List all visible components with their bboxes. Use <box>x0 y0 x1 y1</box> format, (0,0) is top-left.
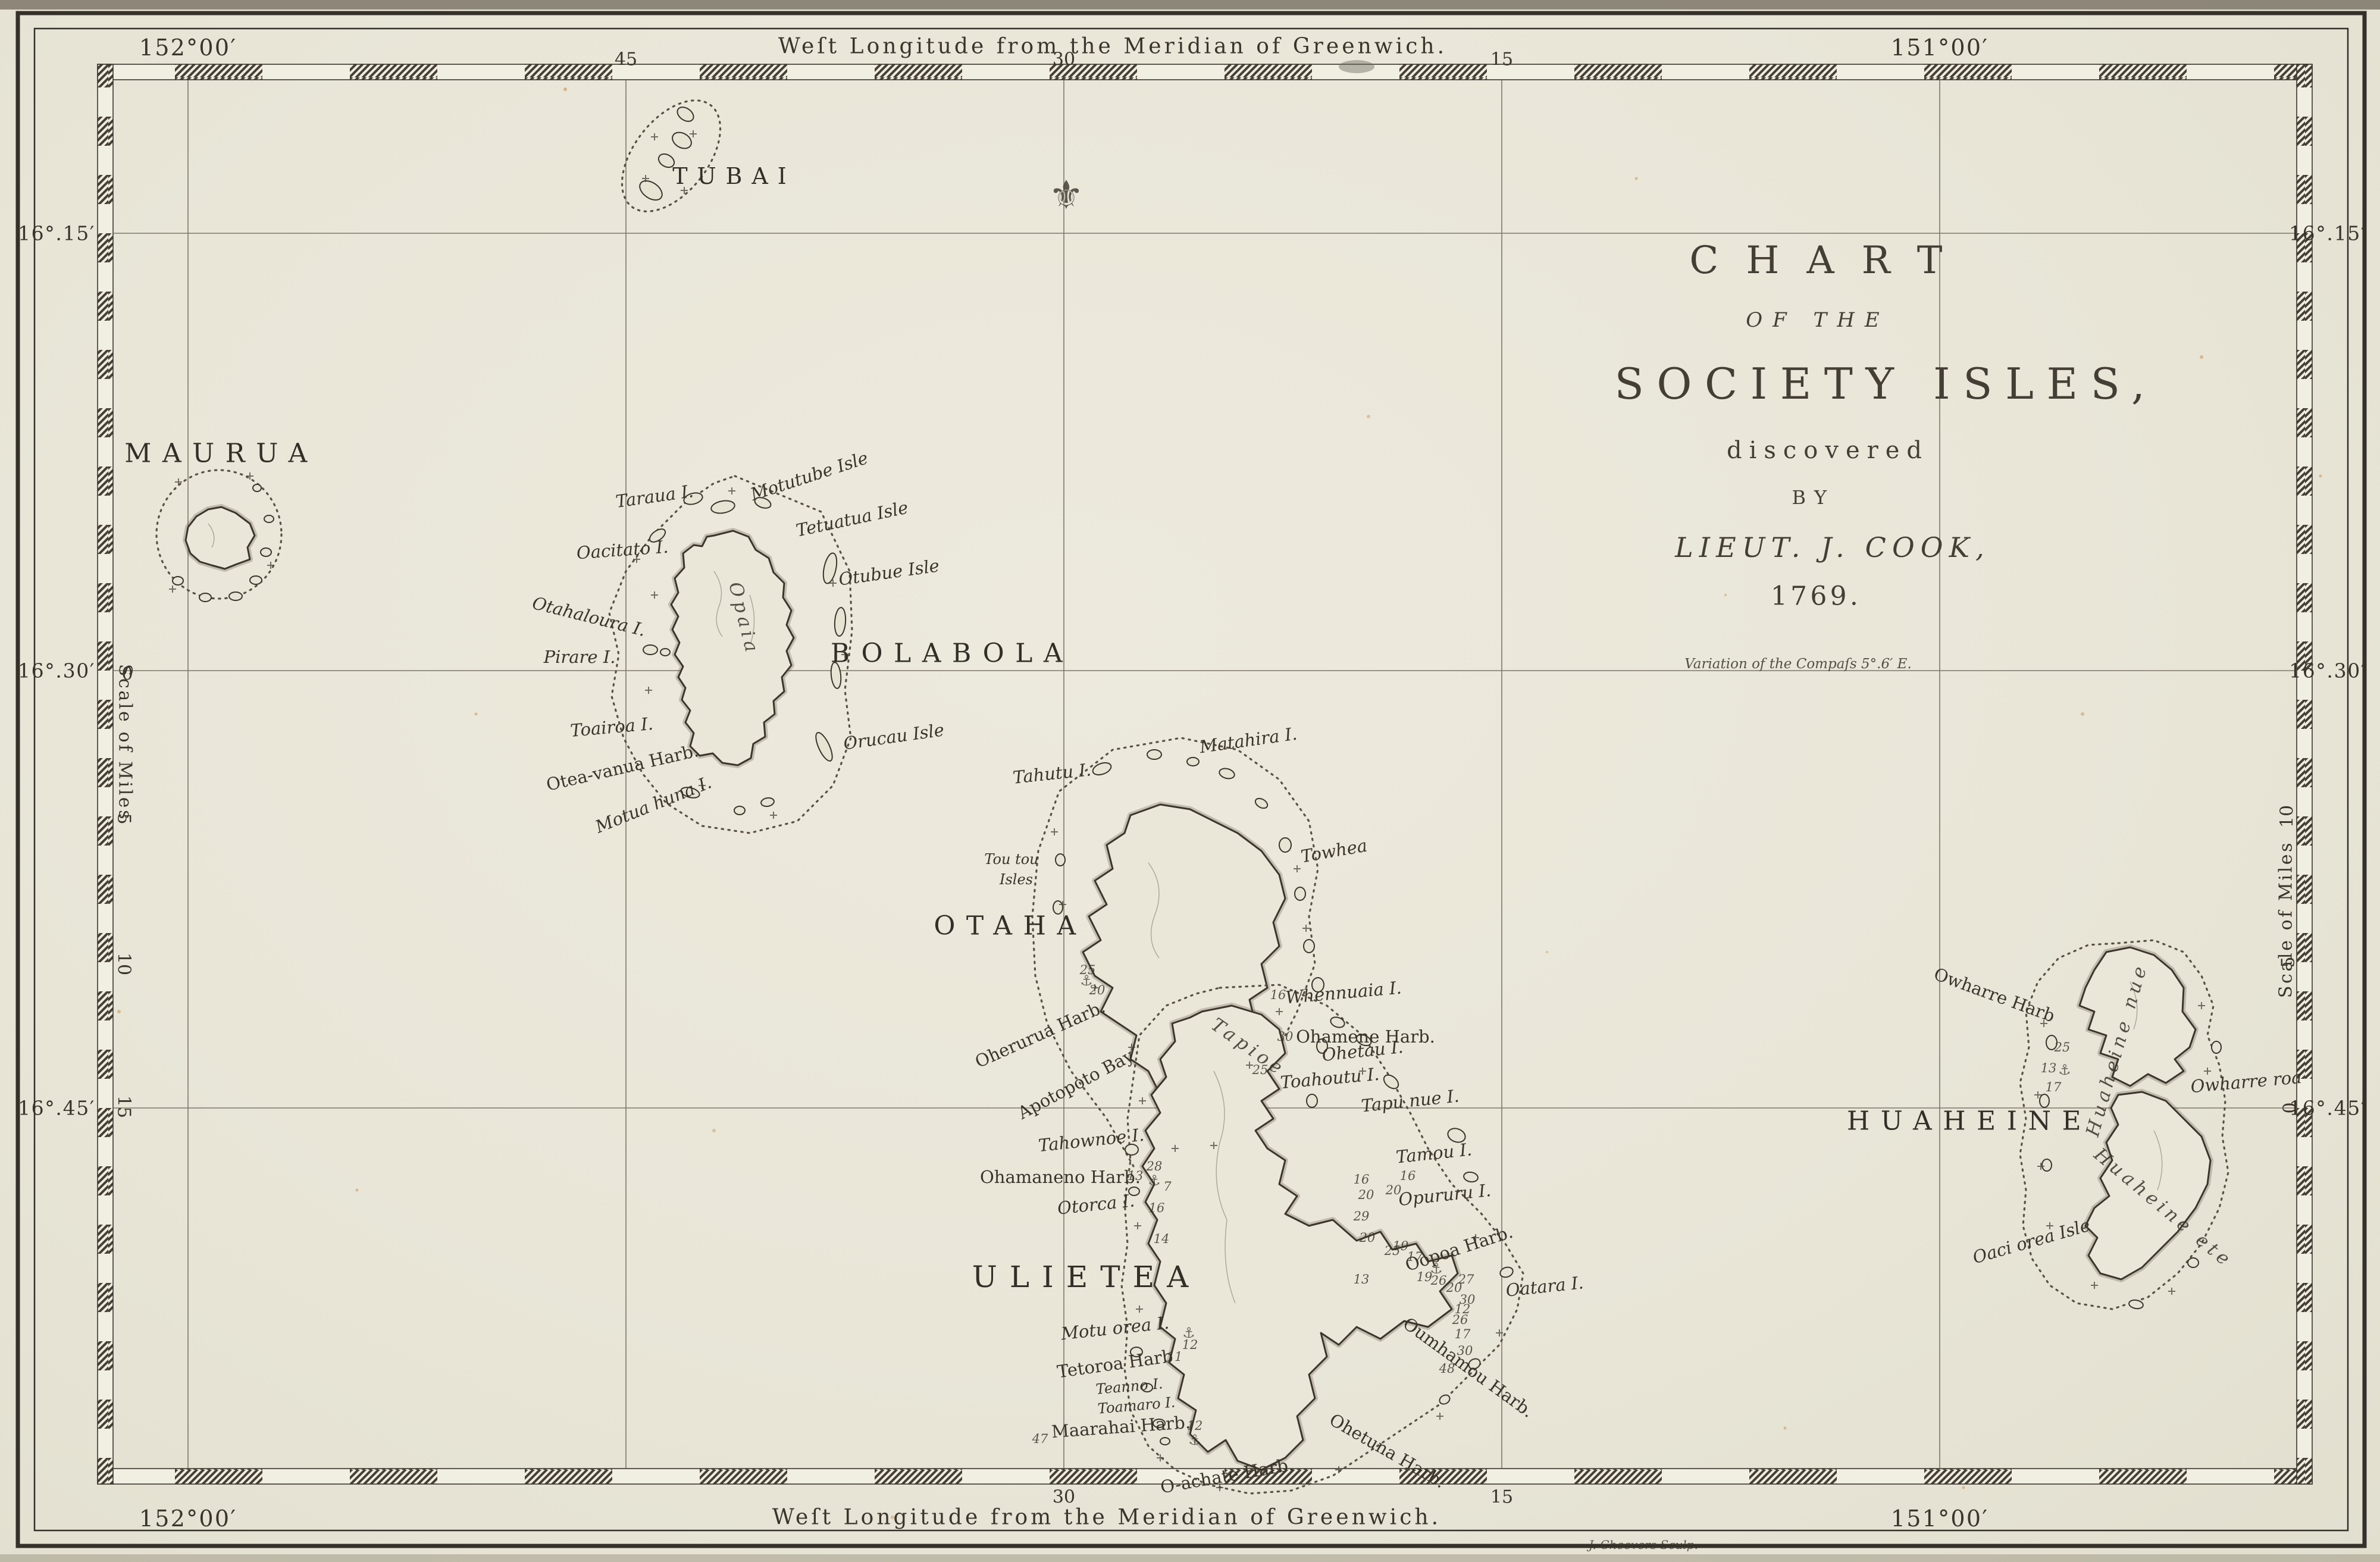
island-bolabola <box>609 476 852 833</box>
island-maurua <box>156 470 281 602</box>
island-huaheine <box>2020 940 2228 1310</box>
island-tubai <box>603 83 740 230</box>
map-canvas: CHART OF THE SOCIETY ISLES, discovered B… <box>0 0 2380 1562</box>
island-ulietea <box>1122 985 1523 1494</box>
chart-artwork <box>0 0 2380 1562</box>
